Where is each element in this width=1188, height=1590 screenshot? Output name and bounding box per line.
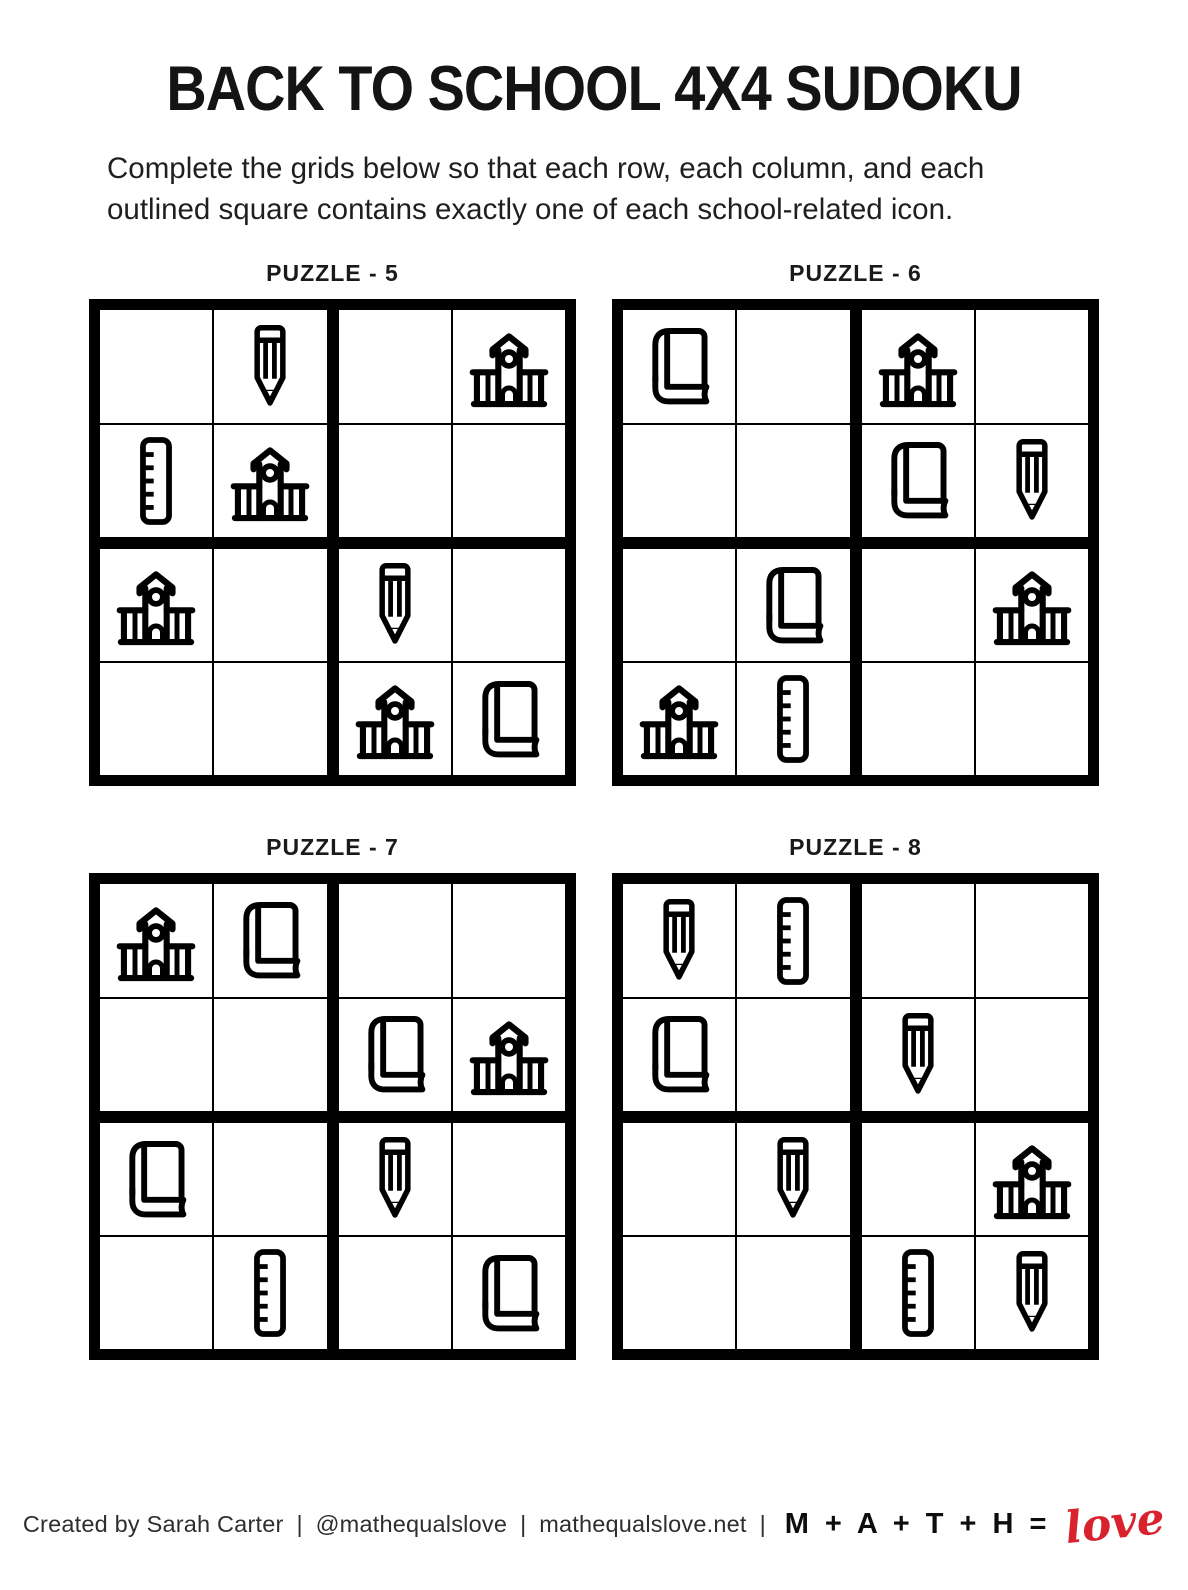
sudoku-cell-empty	[736, 1236, 850, 1350]
school-icon	[224, 439, 316, 523]
sudoku-cell-pencil	[975, 424, 1089, 538]
puzzle-7: PUZZLE - 7	[89, 834, 576, 1360]
sudoku-grid-puzzle-8	[612, 873, 1099, 1360]
sudoku-cell-school	[452, 309, 566, 423]
sudoku-cell-empty	[622, 1236, 736, 1350]
footer-separator: |	[520, 1511, 526, 1538]
school-icon	[110, 563, 202, 647]
sudoku-cell-book	[622, 309, 736, 423]
sudoku-cell-school	[622, 662, 736, 776]
school-icon	[633, 677, 725, 761]
book-icon	[881, 436, 955, 525]
sudoku-cell-book	[99, 1122, 213, 1236]
sudoku-cell-empty	[736, 998, 850, 1112]
sudoku-block	[856, 878, 1095, 1117]
sudoku-cell-book	[452, 1236, 566, 1350]
school-icon	[463, 1013, 555, 1097]
sudoku-block	[617, 543, 856, 782]
sudoku-cell-pencil	[622, 883, 736, 997]
sudoku-cell-ruler	[213, 1236, 327, 1350]
pencil-icon	[771, 1135, 815, 1223]
book-icon	[358, 1010, 432, 1099]
instructions-text: Complete the grids below so that each ro…	[107, 149, 1088, 230]
sudoku-cell-school	[338, 662, 452, 776]
pencil-icon	[896, 1011, 940, 1099]
ruler-icon	[770, 673, 816, 765]
sudoku-cell-empty	[452, 548, 566, 662]
sudoku-cell-empty	[622, 548, 736, 662]
pencil-icon	[248, 323, 292, 411]
sudoku-cell-empty	[338, 1236, 452, 1350]
sudoku-cell-empty	[338, 309, 452, 423]
school-icon	[110, 899, 202, 983]
sudoku-cell-school	[213, 424, 327, 538]
puzzle-8-title: PUZZLE - 8	[612, 834, 1099, 861]
sudoku-grid-puzzle-7	[89, 873, 576, 1360]
sudoku-cell-empty	[622, 424, 736, 538]
sudoku-block	[617, 304, 856, 543]
sudoku-block	[856, 543, 1095, 782]
sudoku-cell-empty	[99, 662, 213, 776]
sudoku-block	[333, 543, 572, 782]
sudoku-cell-empty	[213, 548, 327, 662]
school-icon	[463, 325, 555, 409]
sudoku-cell-empty	[99, 1236, 213, 1350]
sudoku-block	[333, 1117, 572, 1356]
school-icon	[986, 563, 1078, 647]
sudoku-cell-empty	[452, 883, 566, 997]
book-icon	[756, 561, 830, 650]
sudoku-cell-empty	[99, 998, 213, 1112]
pencil-icon	[1010, 437, 1054, 525]
sudoku-cell-pencil	[338, 1122, 452, 1236]
ruler-icon	[770, 895, 816, 987]
puzzles-row-bottom: PUZZLE - 7 PUZZLE - 8	[0, 834, 1188, 1360]
sudoku-cell-empty	[622, 1122, 736, 1236]
pencil-icon	[657, 897, 701, 985]
footer: Created by Sarah Carter | @mathequalslov…	[0, 1502, 1188, 1546]
sudoku-cell-empty	[861, 883, 975, 997]
pencil-icon	[373, 1135, 417, 1223]
footer-credit: Created by Sarah Carter	[23, 1511, 284, 1538]
book-icon	[642, 1010, 716, 1099]
sudoku-cell-pencil	[213, 309, 327, 423]
sudoku-cell-empty	[338, 883, 452, 997]
book-icon	[472, 1249, 546, 1338]
sudoku-cell-pencil	[975, 1236, 1089, 1350]
sudoku-cell-book	[452, 662, 566, 776]
sudoku-cell-pencil	[338, 548, 452, 662]
sudoku-cell-school	[975, 1122, 1089, 1236]
sudoku-cell-ruler	[736, 662, 850, 776]
book-icon	[642, 322, 716, 411]
sudoku-block	[94, 878, 333, 1117]
sudoku-cell-empty	[861, 1122, 975, 1236]
sudoku-cell-book	[861, 424, 975, 538]
pencil-icon	[373, 561, 417, 649]
sudoku-block	[94, 1117, 333, 1356]
ruler-icon	[247, 1247, 293, 1339]
school-icon	[872, 325, 964, 409]
sudoku-cell-book	[736, 548, 850, 662]
puzzle-5-title: PUZZLE - 5	[89, 260, 576, 287]
sudoku-block	[333, 304, 572, 543]
sudoku-grid-puzzle-5	[89, 299, 576, 786]
ruler-icon	[133, 435, 179, 527]
sudoku-block	[856, 1117, 1095, 1356]
sudoku-cell-ruler	[99, 424, 213, 538]
puzzle-6-title: PUZZLE - 6	[612, 260, 1099, 287]
sudoku-cell-empty	[452, 424, 566, 538]
sudoku-cell-school	[99, 548, 213, 662]
sudoku-cell-school	[99, 883, 213, 997]
sudoku-cell-book	[622, 998, 736, 1112]
sudoku-cell-pencil	[861, 998, 975, 1112]
book-icon	[233, 896, 307, 985]
book-icon	[472, 675, 546, 764]
sudoku-cell-school	[452, 998, 566, 1112]
puzzle-8: PUZZLE - 8	[612, 834, 1099, 1360]
sudoku-cell-empty	[861, 548, 975, 662]
sudoku-block	[856, 304, 1095, 543]
footer-separator: |	[297, 1511, 303, 1538]
sudoku-cell-empty	[975, 662, 1089, 776]
sudoku-block	[94, 304, 333, 543]
sudoku-cell-book	[338, 998, 452, 1112]
footer-website: mathequalslove.net	[539, 1511, 746, 1538]
sudoku-block	[617, 878, 856, 1117]
puzzle-6: PUZZLE - 6	[612, 260, 1099, 786]
sudoku-cell-ruler	[861, 1236, 975, 1350]
sudoku-cell-empty	[861, 662, 975, 776]
sudoku-block	[94, 543, 333, 782]
school-icon	[986, 1137, 1078, 1221]
sudoku-cell-empty	[452, 1122, 566, 1236]
school-icon	[349, 677, 441, 761]
sudoku-grid-puzzle-6	[612, 299, 1099, 786]
page-title: BACK TO SCHOOL 4X4 SUDOKU	[42, 52, 1147, 124]
puzzles-row-top: PUZZLE - 5 PUZZLE - 6	[0, 260, 1188, 786]
pencil-icon	[1010, 1249, 1054, 1337]
sudoku-cell-empty	[736, 309, 850, 423]
sudoku-cell-empty	[213, 662, 327, 776]
sudoku-cell-ruler	[736, 883, 850, 997]
sudoku-cell-pencil	[736, 1122, 850, 1236]
sudoku-cell-empty	[213, 998, 327, 1112]
brand-love-script: love	[1063, 1497, 1167, 1551]
sudoku-cell-school	[861, 309, 975, 423]
puzzle-7-title: PUZZLE - 7	[89, 834, 576, 861]
sudoku-cell-empty	[338, 424, 452, 538]
puzzle-5: PUZZLE - 5	[89, 260, 576, 786]
sudoku-block	[333, 878, 572, 1117]
sudoku-cell-empty	[975, 998, 1089, 1112]
sudoku-cell-empty	[975, 309, 1089, 423]
sudoku-cell-book	[213, 883, 327, 997]
sudoku-cell-empty	[975, 883, 1089, 997]
ruler-icon	[895, 1247, 941, 1339]
footer-separator: |	[760, 1511, 766, 1538]
sudoku-cell-empty	[736, 424, 850, 538]
book-icon	[119, 1135, 193, 1224]
sudoku-block	[617, 1117, 856, 1356]
sudoku-cell-empty	[213, 1122, 327, 1236]
footer-social-handle: @mathequalslove	[316, 1511, 507, 1538]
sudoku-cell-empty	[99, 309, 213, 423]
sudoku-cell-school	[975, 548, 1089, 662]
